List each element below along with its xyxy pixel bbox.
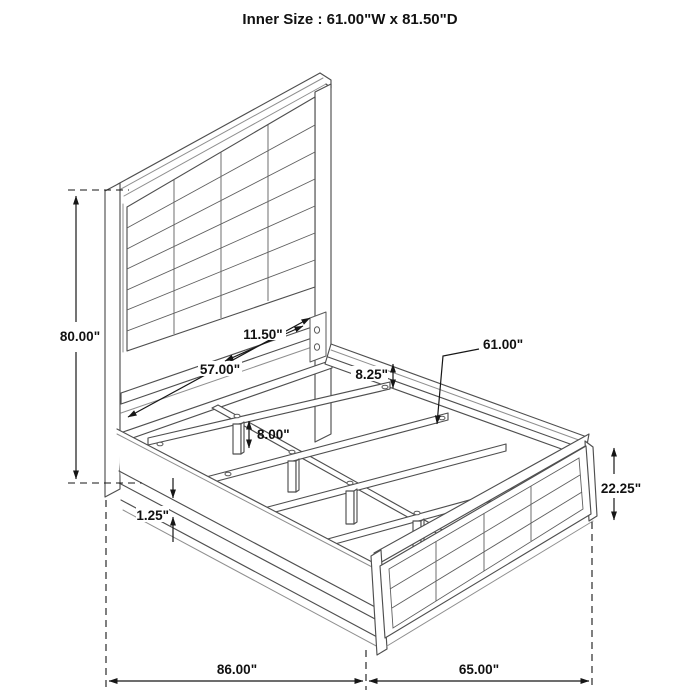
support-leg-3 — [346, 489, 357, 524]
dim-overall-height-label: 80.00" — [60, 329, 100, 344]
bed-dimension-diagram: Inner Size : 61.00"W x 81.50"D 80.00" 57… — [0, 0, 700, 700]
dim-footboard-height: 22.25" — [601, 448, 641, 520]
dim-overall-width-label: 65.00" — [459, 662, 499, 677]
footboard — [371, 434, 597, 655]
headboard-left-post — [105, 183, 120, 497]
bed-dimension-diagram-page: Inner Size : 61.00"W x 81.50"D 80.00" 57… — [0, 0, 700, 700]
inner-size-title: Inner Size : 61.00"W x 81.50"D — [242, 11, 457, 28]
support-leg-1 — [233, 422, 244, 454]
dim-headboard-inner-width-label: 57.00" — [200, 362, 240, 377]
dim-overall-length-label: 86.00" — [217, 662, 257, 677]
dim-slat-length-label: 61.00" — [483, 337, 523, 352]
dim-headboard-bottom-gap-label: 11.50" — [243, 327, 282, 342]
dim-footboard-height-label: 22.25" — [601, 481, 641, 496]
headboard-right-post — [315, 84, 331, 442]
dim-overall-width: 65.00" — [369, 662, 589, 681]
dim-rail-top-to-slat-label: 8.25" — [355, 367, 388, 382]
mounting-bracket — [310, 312, 326, 362]
dim-leg-height-label: 8.00" — [257, 427, 290, 442]
dim-rail-lip-label: 1.25" — [136, 508, 169, 523]
dim-overall-length: 86.00" — [109, 662, 363, 681]
support-leg-2 — [288, 459, 299, 492]
